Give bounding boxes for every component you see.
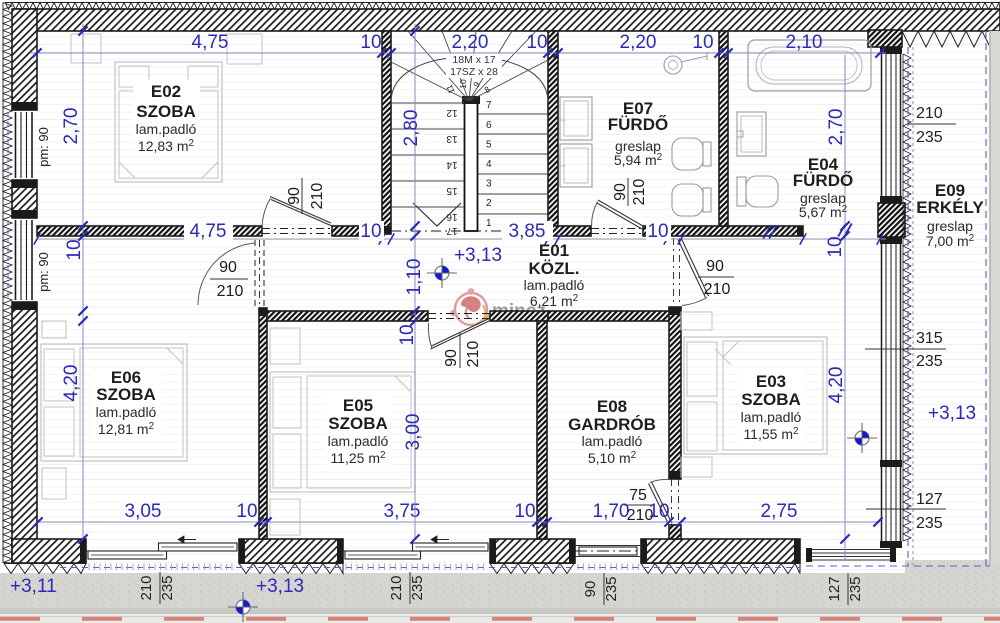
svg-text:5: 5: [486, 140, 492, 151]
svg-text:5,67 m2: 5,67 m2: [799, 204, 848, 221]
svg-text:210: 210: [217, 283, 244, 300]
svg-text:4,20: 4,20: [61, 365, 82, 402]
svg-text:E05: E05: [343, 396, 373, 415]
svg-text:2,75: 2,75: [761, 501, 798, 522]
svg-text:17SZ x 28: 17SZ x 28: [450, 66, 498, 78]
svg-text:12,83 m2: 12,83 m2: [138, 138, 195, 155]
svg-text:10: 10: [458, 79, 468, 89]
svg-text:10: 10: [825, 236, 846, 257]
svg-text:+3,11: +3,11: [10, 576, 57, 597]
svg-text:FÜRDŐ: FÜRDŐ: [793, 171, 853, 190]
svg-text:10: 10: [360, 221, 381, 242]
svg-text:6: 6: [486, 120, 492, 131]
svg-text:+3,13: +3,13: [928, 403, 976, 424]
svg-text:lam.padló: lam.padló: [582, 433, 643, 449]
svg-text:GARDRÓB: GARDRÓB: [568, 415, 656, 434]
svg-text:lam.padló: lam.padló: [136, 121, 197, 137]
svg-text:+3,13: +3,13: [256, 576, 304, 597]
svg-text:12,81 m2: 12,81 m2: [98, 421, 155, 438]
svg-text:1,10: 1,10: [404, 259, 425, 296]
svg-text:E02: E02: [151, 82, 181, 101]
svg-text:7,00 m2: 7,00 m2: [926, 233, 975, 250]
svg-text:4: 4: [486, 159, 492, 170]
svg-text:11,25 m2: 11,25 m2: [330, 450, 386, 467]
svg-text:2,20: 2,20: [452, 32, 489, 53]
svg-text:5,10 m2: 5,10 m2: [588, 450, 637, 467]
svg-text:90: 90: [582, 581, 599, 598]
svg-text:1,70: 1,70: [593, 501, 630, 522]
svg-text:235: 235: [847, 576, 864, 601]
svg-text:1: 1: [486, 218, 492, 229]
svg-text:210: 210: [631, 179, 648, 206]
svg-text:2: 2: [486, 198, 492, 209]
svg-text:10: 10: [647, 221, 668, 242]
svg-text:10: 10: [64, 239, 85, 260]
svg-text:127: 127: [826, 576, 843, 601]
svg-text:235: 235: [603, 576, 620, 601]
svg-text:pm: 90: pm: 90: [36, 127, 51, 167]
svg-text:210: 210: [465, 341, 482, 368]
svg-text:12: 12: [446, 107, 458, 118]
svg-text:210: 210: [704, 281, 731, 298]
svg-text:3,85: 3,85: [509, 221, 546, 242]
svg-text:E03: E03: [756, 372, 786, 391]
svg-text:90: 90: [443, 349, 460, 367]
svg-text:90: 90: [612, 183, 629, 201]
svg-text:90: 90: [286, 187, 303, 205]
svg-text:3: 3: [486, 179, 492, 190]
svg-text:210: 210: [138, 575, 155, 600]
svg-text:2,10: 2,10: [786, 32, 823, 53]
svg-text:17: 17: [446, 225, 458, 236]
svg-text:10: 10: [360, 32, 381, 53]
svg-text:10: 10: [526, 32, 547, 53]
svg-text:235: 235: [916, 129, 943, 146]
svg-text:15: 15: [446, 185, 458, 196]
svg-text:18M x 17: 18M x 17: [452, 54, 495, 66]
svg-text:2,70: 2,70: [61, 108, 82, 145]
svg-text:5,94 m2: 5,94 m2: [614, 152, 663, 169]
svg-text:4,75: 4,75: [192, 32, 229, 53]
svg-text:lam.padló: lam.padló: [328, 433, 389, 449]
svg-text:E01: E01: [539, 241, 569, 260]
svg-text:3,00: 3,00: [403, 414, 424, 451]
svg-text:10: 10: [236, 501, 257, 522]
svg-text:lam.padló: lam.padló: [96, 404, 157, 420]
svg-text:lam.padló: lam.padló: [524, 277, 585, 293]
svg-text:75: 75: [629, 487, 647, 504]
svg-text:4,20: 4,20: [826, 367, 847, 404]
svg-text:235: 235: [916, 515, 943, 532]
svg-text:210: 210: [309, 183, 326, 210]
svg-text:SZOBA: SZOBA: [136, 102, 196, 121]
svg-text:210: 210: [916, 105, 943, 122]
svg-text:lam.padló: lam.padló: [741, 409, 802, 425]
svg-text:pm: 90: pm: 90: [36, 252, 51, 292]
svg-text:2,80: 2,80: [401, 110, 422, 147]
svg-text:6,21 m2: 6,21 m2: [530, 293, 579, 310]
svg-text:SZOBA: SZOBA: [741, 390, 801, 409]
svg-text:2,70: 2,70: [826, 109, 847, 146]
svg-text:10: 10: [514, 501, 535, 522]
svg-text:10: 10: [692, 32, 713, 53]
svg-text:11,55 m2: 11,55 m2: [743, 426, 799, 443]
svg-text:13: 13: [446, 133, 458, 144]
svg-text:SZOBA: SZOBA: [328, 414, 388, 433]
svg-text:7: 7: [486, 100, 492, 111]
svg-text:127: 127: [916, 491, 943, 508]
svg-text:315: 315: [916, 330, 943, 347]
svg-text:E08: E08: [597, 397, 627, 416]
svg-text:235: 235: [159, 575, 176, 600]
svg-text:2,20: 2,20: [620, 32, 657, 53]
svg-text:90: 90: [706, 258, 724, 275]
svg-text:SZOBA: SZOBA: [96, 385, 156, 404]
svg-text:210: 210: [388, 575, 405, 600]
svg-text:90: 90: [219, 259, 237, 276]
svg-text:+3,13: +3,13: [454, 245, 502, 266]
svg-text:3,05: 3,05: [125, 501, 162, 522]
svg-text:greslap: greslap: [927, 218, 973, 234]
svg-text:KÖZL.: KÖZL.: [529, 259, 580, 278]
svg-text:ERKÉLY: ERKÉLY: [916, 198, 984, 217]
svg-text:14: 14: [446, 159, 458, 170]
svg-text:4,75: 4,75: [190, 221, 227, 242]
svg-text:235: 235: [409, 575, 426, 600]
svg-text:10: 10: [648, 501, 669, 522]
svg-text:10: 10: [397, 324, 418, 345]
svg-text:FÜRDŐ: FÜRDŐ: [608, 115, 668, 134]
svg-text:235: 235: [916, 353, 943, 370]
